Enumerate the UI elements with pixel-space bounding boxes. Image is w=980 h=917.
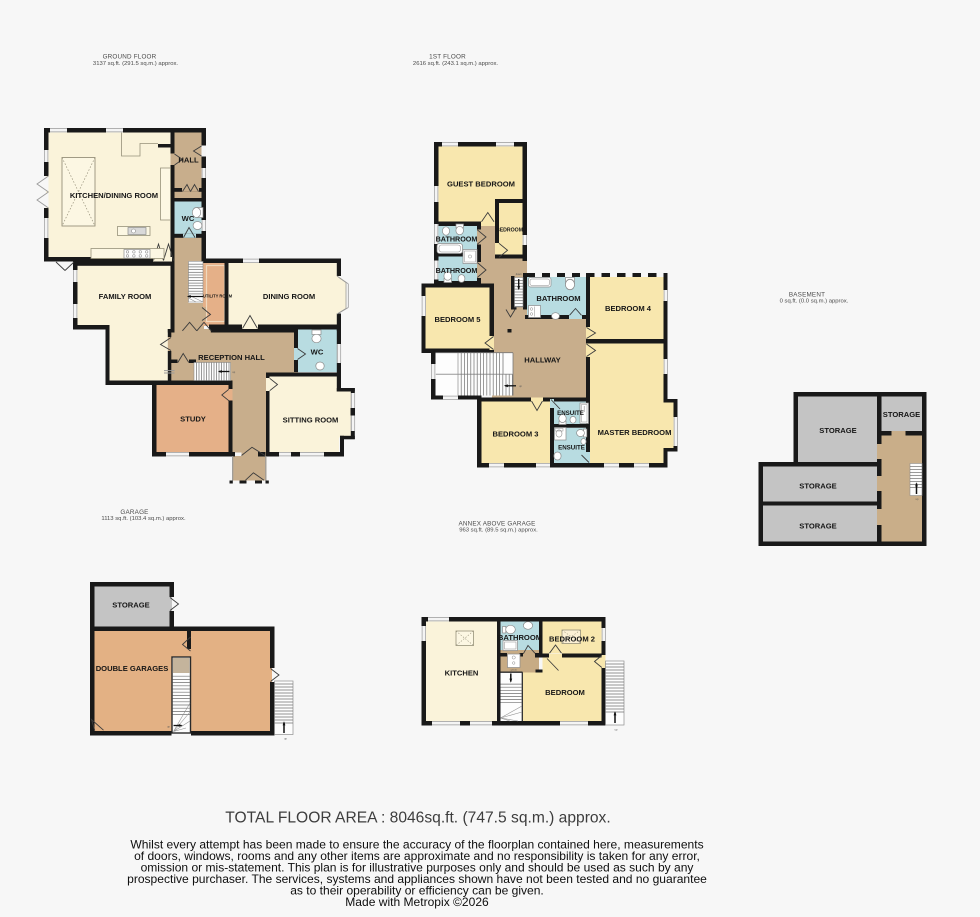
svg-text:FAMILY ROOM: FAMILY ROOM xyxy=(99,292,152,301)
svg-text:STUDY: STUDY xyxy=(180,415,206,424)
svg-text:STORAGE: STORAGE xyxy=(799,522,836,531)
svg-text:BEDROOM 5: BEDROOM 5 xyxy=(435,315,482,324)
svg-text:cylinder: cylinder xyxy=(510,668,518,671)
svg-text:MASTER BEDROOM: MASTER BEDROOM xyxy=(598,428,672,437)
svg-text:WC: WC xyxy=(311,348,324,357)
svg-text:1ST FLOOR: 1ST FLOOR xyxy=(429,54,466,61)
svg-text:ENSUITE: ENSUITE xyxy=(557,410,584,417)
svg-text:RECEPTION HALL: RECEPTION HALL xyxy=(198,353,265,362)
svg-text:STORAGE: STORAGE xyxy=(883,410,920,419)
svg-text:DOUBLE GARAGES: DOUBLE GARAGES xyxy=(96,664,169,673)
svg-text:STORAGE: STORAGE xyxy=(819,426,856,435)
svg-text:GUEST BEDROOM: GUEST BEDROOM xyxy=(447,180,515,189)
svg-text:UTILITY ROOM: UTILITY ROOM xyxy=(203,294,233,299)
svg-text:down: down xyxy=(516,273,523,276)
svg-text:HALLWAY: HALLWAY xyxy=(524,356,560,365)
svg-text:ENSUITE: ENSUITE xyxy=(558,445,585,452)
svg-text:BATHROOM: BATHROOM xyxy=(536,294,580,303)
svg-text:BEDROOM 3: BEDROOM 3 xyxy=(493,430,539,439)
svg-text:WC: WC xyxy=(182,214,195,223)
svg-text:1113 sq.ft. (103.4 sq.m.) appr: 1113 sq.ft. (103.4 sq.m.) approx. xyxy=(101,516,186,522)
svg-text:KITCHEN/DINING ROOM: KITCHEN/DINING ROOM xyxy=(70,191,158,200)
svg-text:TOTAL FLOOR AREA : 8046sq.ft.: TOTAL FLOOR AREA : 8046sq.ft. (747.5 sq.… xyxy=(225,810,610,827)
svg-text:BATHROOM: BATHROOM xyxy=(436,235,478,244)
svg-text:GROUND FLOOR: GROUND FLOOR xyxy=(103,54,157,61)
svg-text:BATHROOM: BATHROOM xyxy=(436,266,478,275)
svg-text:Made with Metropix ©2026: Made with Metropix ©2026 xyxy=(345,895,489,909)
svg-text:STORAGE: STORAGE xyxy=(799,482,836,491)
svg-text:0 sq.ft. (0.0 sq.m.) approx.: 0 sq.ft. (0.0 sq.m.) approx. xyxy=(780,298,849,304)
svg-text:BEDROOM 4: BEDROOM 4 xyxy=(605,304,652,313)
svg-text:2616 sq.ft. (243.1 sq.m.) appr: 2616 sq.ft. (243.1 sq.m.) approx. xyxy=(413,61,498,67)
svg-text:KITCHEN: KITCHEN xyxy=(445,669,479,678)
svg-text:SITTING ROOM: SITTING ROOM xyxy=(283,416,339,425)
svg-text:STORAGE: STORAGE xyxy=(112,601,149,610)
svg-text:BEDROOM 2: BEDROOM 2 xyxy=(549,635,595,644)
svg-text:BEDROOM: BEDROOM xyxy=(496,228,523,234)
svg-text:BATHROOM: BATHROOM xyxy=(498,633,542,642)
svg-text:DINING ROOM: DINING ROOM xyxy=(263,292,315,301)
svg-text:HALL: HALL xyxy=(178,156,199,165)
svg-text:BEDROOM: BEDROOM xyxy=(545,688,585,697)
svg-text:963 sq.ft. (89.5 sq.m.) approx: 963 sq.ft. (89.5 sq.m.) approx. xyxy=(459,527,538,533)
svg-text:3137 sq.ft. (291.5 sq.m.) appr: 3137 sq.ft. (291.5 sq.m.) approx. xyxy=(93,61,178,67)
